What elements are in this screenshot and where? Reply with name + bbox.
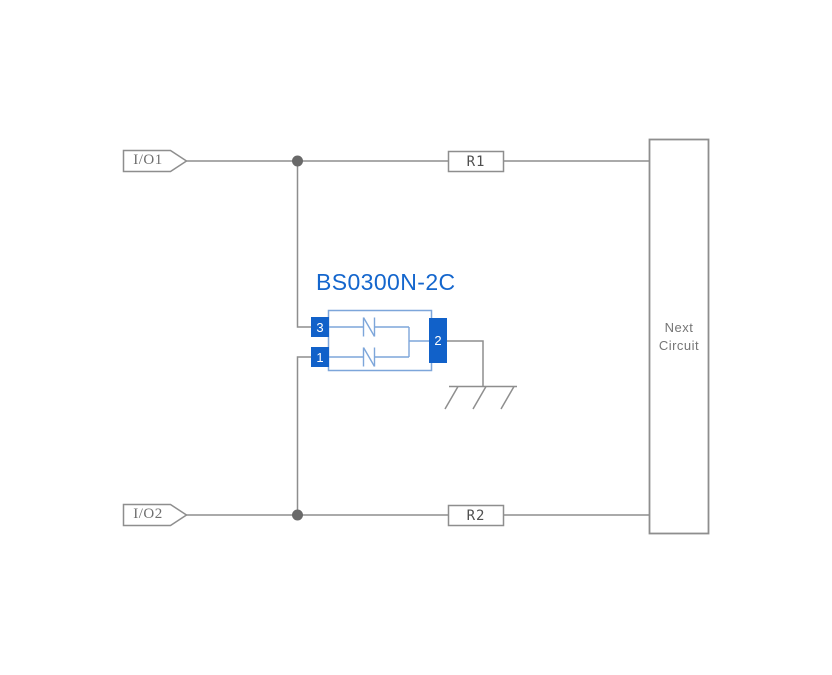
resistor-r1-label: R1	[448, 151, 504, 172]
component-title: BS0300N-2C	[316, 269, 456, 296]
pin3-label: 3	[311, 317, 329, 337]
next-circuit-label: Next Circuit	[649, 319, 709, 355]
schematic-canvas: I/O1 I/O2 R1 R2 BS0300N-2C 3 1 2 Next Ci…	[0, 0, 832, 675]
wire-pin2-to-ground	[447, 341, 483, 387]
next-circuit-line1: Next	[649, 319, 709, 337]
pin1-label: 1	[311, 347, 329, 367]
resistor-r2-label: R2	[448, 505, 504, 526]
ground-hatch-3	[501, 387, 514, 410]
ground-hatch-1	[445, 387, 458, 410]
io1-label: I/O1	[124, 150, 172, 171]
next-circuit-line2: Circuit	[649, 337, 709, 355]
pin2-label: 2	[429, 318, 447, 363]
wire-branch-bottom-to-pin1	[298, 357, 312, 515]
junction-dot-top	[292, 156, 303, 167]
io2-label: I/O2	[124, 504, 172, 525]
wire-branch-top-to-pin3	[298, 161, 312, 327]
junction-dot-bottom	[292, 510, 303, 521]
ground-hatch-2	[473, 387, 486, 410]
io-tag-shapes	[124, 151, 187, 526]
